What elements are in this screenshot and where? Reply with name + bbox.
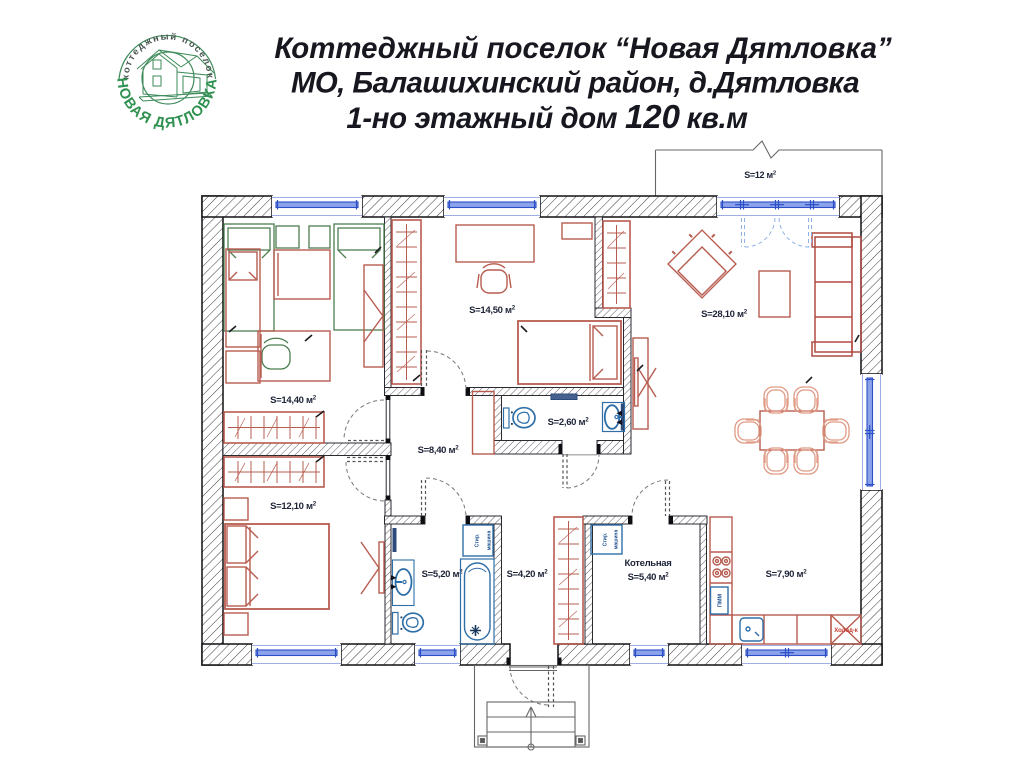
svg-text:ПММ: ПММ <box>718 594 724 608</box>
svg-text:S=12 м2: S=12 м2 <box>744 170 777 180</box>
svg-text:S=5,20 м2: S=5,20 м2 <box>422 569 464 581</box>
svg-text:S=4,20 м2: S=4,20 м2 <box>507 569 549 581</box>
svg-text:S=5,40 м2: S=5,40 м2 <box>628 572 670 584</box>
svg-text:S=14,40 м2: S=14,40 м2 <box>270 395 317 407</box>
svg-text:Стир.: Стир. <box>475 533 481 547</box>
svg-text:S=8,40 м2: S=8,40 м2 <box>418 445 460 457</box>
svg-text:S=2,60 м2: S=2,60 м2 <box>548 417 590 429</box>
svg-text:Холод-к: Холод-к <box>834 628 858 634</box>
svg-text:машина: машина <box>487 531 493 551</box>
svg-text:МО, Балашихинский район, д.Дят: МО, Балашихинский район, д.Дятловка <box>291 67 859 100</box>
svg-text:1-но этажный дом 120 кв.м: 1-но этажный дом 120 кв.м <box>346 98 748 135</box>
svg-text:машина: машина <box>614 530 620 550</box>
svg-text:S=12,10 м2: S=12,10 м2 <box>270 501 317 513</box>
svg-text:Котельная: Котельная <box>624 558 671 569</box>
svg-text:Стир.: Стир. <box>603 532 609 546</box>
svg-text:S=7,90 м2: S=7,90 м2 <box>766 569 808 581</box>
svg-text:S=28,10 м2: S=28,10 м2 <box>701 309 748 321</box>
svg-text:S=14,50 м2: S=14,50 м2 <box>469 305 516 317</box>
svg-text:Коттеджный поселок “Новая Дятл: Коттеджный поселок “Новая Дятловка” <box>274 32 892 65</box>
